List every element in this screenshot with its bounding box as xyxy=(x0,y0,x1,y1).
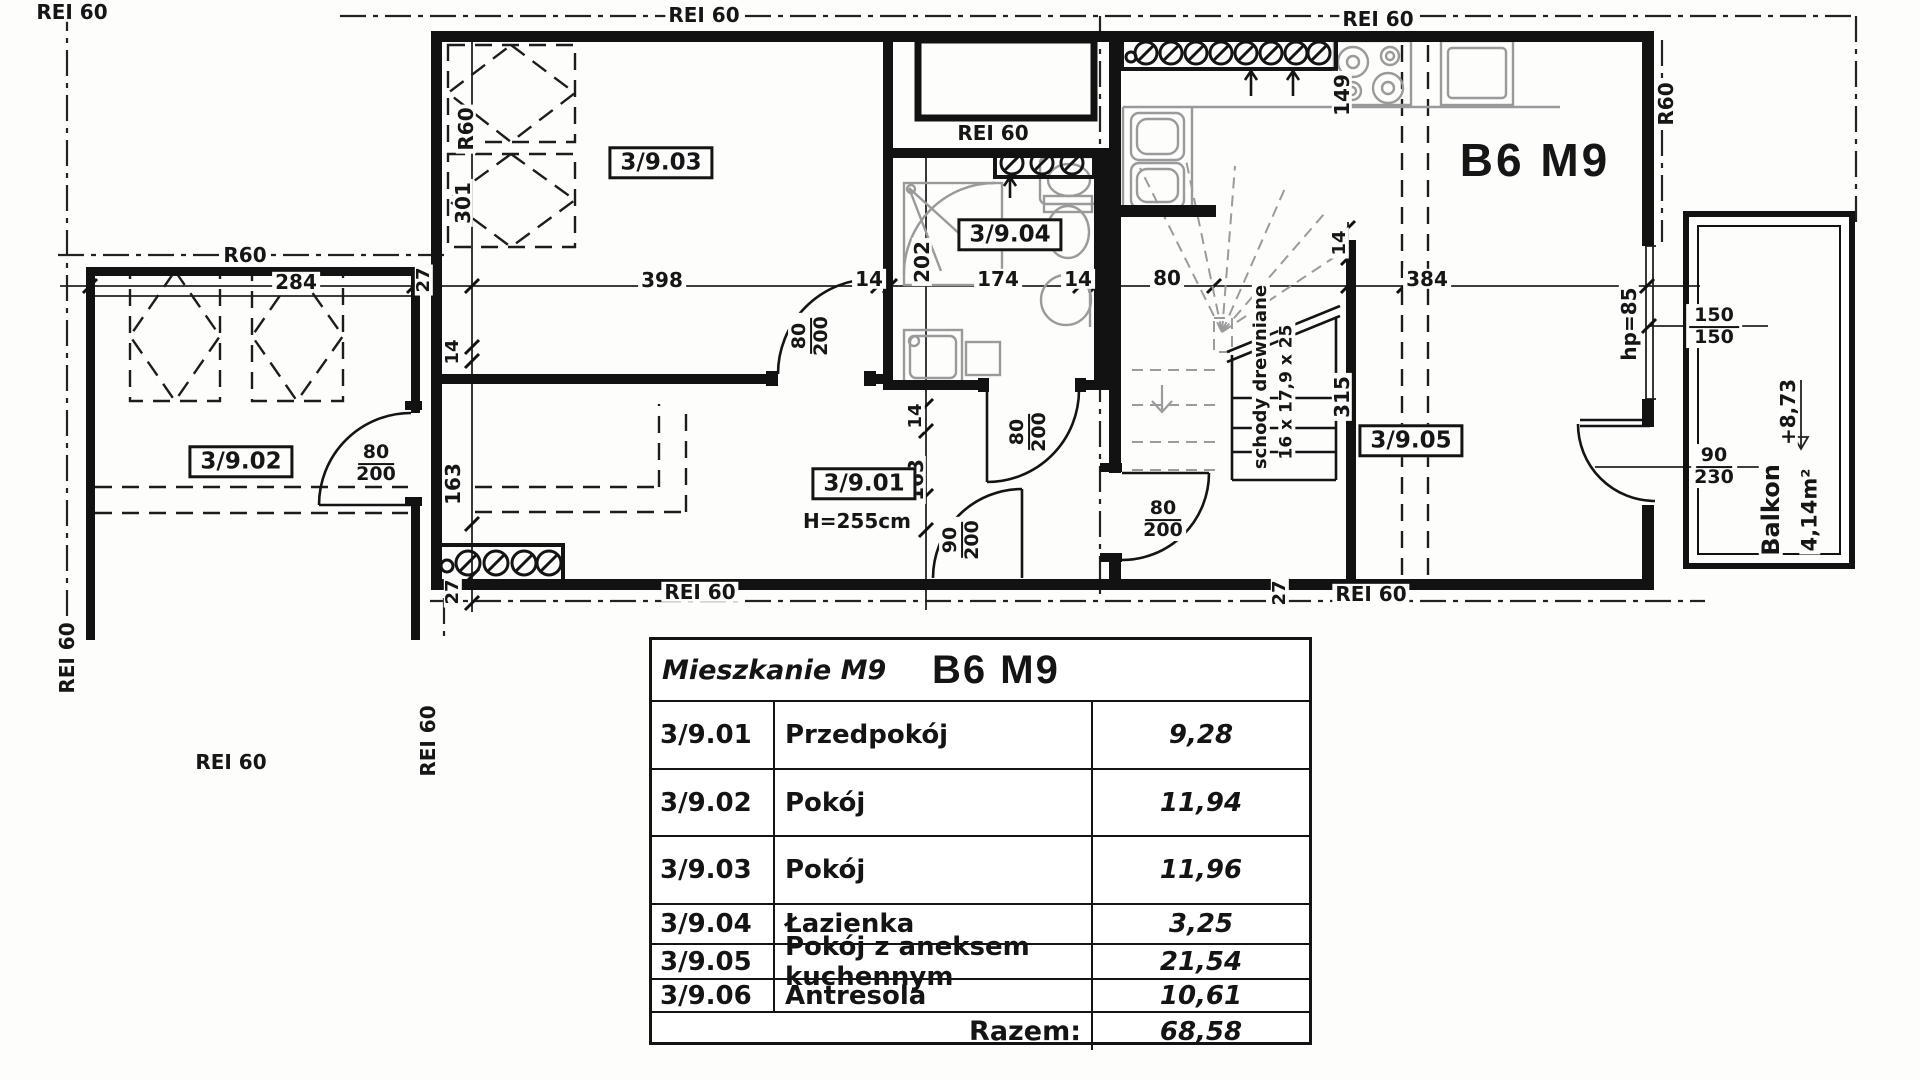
dimension-label: 149 xyxy=(1332,71,1352,119)
cell-room-number: 3/9.02 xyxy=(652,770,775,835)
table-row: 3/9.06 Antresola 10,61 xyxy=(652,980,1309,1013)
floor-plan: REI 60 REI 60 REI 60 REI 60 REI 60 REI 6… xyxy=(0,0,1920,640)
cell-room-name: Przedpokój xyxy=(775,720,1091,750)
fire-rating-label: R60 xyxy=(1656,79,1676,128)
table-row: 3/9.03 Pokój 11,96 xyxy=(652,837,1309,905)
dimension-label: 301 xyxy=(453,179,473,227)
radiator-kitchen xyxy=(1122,38,1336,69)
dimension-label: 398 xyxy=(638,270,686,290)
door-size-label: 80200 xyxy=(1006,409,1050,455)
dimension-label: 14 xyxy=(1331,227,1349,258)
fire-rating-label: REI 60 xyxy=(57,619,77,696)
cell-room-area: 3,25 xyxy=(1091,905,1309,943)
table-apartment-code: B6 M9 xyxy=(932,648,1060,693)
fire-rating-label: REI 60 xyxy=(1339,9,1416,29)
fire-rating-label: REI 60 xyxy=(1332,584,1409,604)
balcony-door-size-label: 90230 xyxy=(1691,444,1737,488)
room-label-302: 3/9.02 xyxy=(188,445,293,478)
door-size-label: 80200 xyxy=(788,313,832,359)
apartment-title: B6 M9 xyxy=(1457,133,1613,187)
fire-rating-label: R60 xyxy=(456,104,476,153)
stairs-material-label: schody drewniane xyxy=(1252,282,1270,472)
dimension-label: 27 xyxy=(415,264,433,295)
cell-room-number: 3/9.06 xyxy=(652,980,775,1011)
dimension-label: 14 xyxy=(1061,269,1095,289)
stairs-dimensions-label: 16 x 17,9 x 25 xyxy=(1278,322,1295,463)
cell-room-name: Pokój xyxy=(775,788,1091,818)
fridge xyxy=(1441,41,1513,105)
dimension-label: 202 xyxy=(912,238,932,286)
door-size-label: 80200 xyxy=(353,441,399,485)
room-label-304: 3/9.04 xyxy=(957,218,1062,251)
room-label-303: 3/9.03 xyxy=(608,146,713,179)
door-size-label: 80200 xyxy=(1140,497,1186,541)
cell-room-area: 10,61 xyxy=(1091,980,1309,1011)
cell-room-number: 3/9.01 xyxy=(652,702,775,768)
door-size-label: 90200 xyxy=(939,517,983,563)
door-balcony xyxy=(1578,420,1655,501)
cell-room-number: 3/9.05 xyxy=(652,945,775,978)
cell-room-name: Antresola xyxy=(775,981,1091,1011)
balcony-level-label: +8,73 xyxy=(1778,376,1798,448)
table-title: Mieszkanie M9 xyxy=(662,655,886,686)
table-row: 3/9.01 Przedpokój 9,28 xyxy=(652,702,1309,770)
fire-rating-label: REI 60 xyxy=(954,123,1031,143)
floorplan-sheet: REI 60 REI 60 REI 60 REI 60 REI 60 REI 6… xyxy=(0,0,1920,1080)
fire-rating-label: REI 60 xyxy=(192,752,269,772)
cell-room-number: 3/9.03 xyxy=(652,837,775,903)
total-label: Razem: xyxy=(652,1016,1091,1047)
window-size-label: 150150 xyxy=(1686,304,1742,348)
dimension-label: 14 xyxy=(852,269,886,289)
fire-rating-label: REI 60 xyxy=(33,2,110,22)
cabinet xyxy=(966,342,1000,375)
fire-rating-label: REI 60 xyxy=(661,582,738,602)
room-label-305: 3/9.05 xyxy=(1358,424,1463,457)
dimension-label: 14 xyxy=(907,400,925,431)
dimension-label: 174 xyxy=(974,269,1022,289)
ceiling-lines xyxy=(95,45,1428,578)
room-height-label: H=255cm xyxy=(800,511,914,531)
balcony-name-label: Balkon xyxy=(1759,461,1783,559)
dimension-label: 27 xyxy=(444,576,462,607)
area-table: Mieszkanie M9 B6 M9 3/9.01 Przedpokój 9,… xyxy=(649,637,1312,1045)
dimension-label: 384 xyxy=(1403,269,1451,289)
cell-room-area: 11,96 xyxy=(1091,837,1309,903)
fire-rating-label: REI 60 xyxy=(665,5,742,25)
dimension-label: 284 xyxy=(272,272,320,292)
total-value: 68,58 xyxy=(1091,1013,1309,1050)
balcony-area-label: 4,14m² xyxy=(1799,466,1820,555)
dimension-label: 163 xyxy=(443,460,463,508)
dimension-label: 80 xyxy=(1150,268,1184,288)
cell-room-area: 11,94 xyxy=(1091,770,1309,835)
cell-room-area: 9,28 xyxy=(1091,702,1309,768)
cell-room-name: Pokój xyxy=(775,855,1091,885)
window-sill-height-label: hp=85 xyxy=(1619,284,1639,363)
cell-room-number: 3/9.04 xyxy=(652,905,775,943)
dimension-label: 14 xyxy=(444,336,462,367)
room-label-301: 3/9.01 xyxy=(811,467,916,500)
fire-rating-label: REI 60 xyxy=(418,702,438,779)
shaft xyxy=(918,40,1094,118)
table-row: 3/9.02 Pokój 11,94 xyxy=(652,770,1309,837)
table-header: Mieszkanie M9 B6 M9 xyxy=(652,640,1309,702)
fire-rating-label: R60 xyxy=(220,245,269,265)
stairs-direction-arrow xyxy=(1152,385,1172,412)
dimension-label: 315 xyxy=(1332,373,1352,421)
table-row: 3/9.05 Pokój z aneksem kuchennym 21,54 xyxy=(652,945,1309,980)
dimension-label: 27 xyxy=(1271,577,1289,608)
fixtures xyxy=(904,41,1560,384)
cell-room-area: 21,54 xyxy=(1091,945,1309,978)
table-total-row: Razem: 68,58 xyxy=(652,1013,1309,1050)
walls xyxy=(86,31,1654,640)
